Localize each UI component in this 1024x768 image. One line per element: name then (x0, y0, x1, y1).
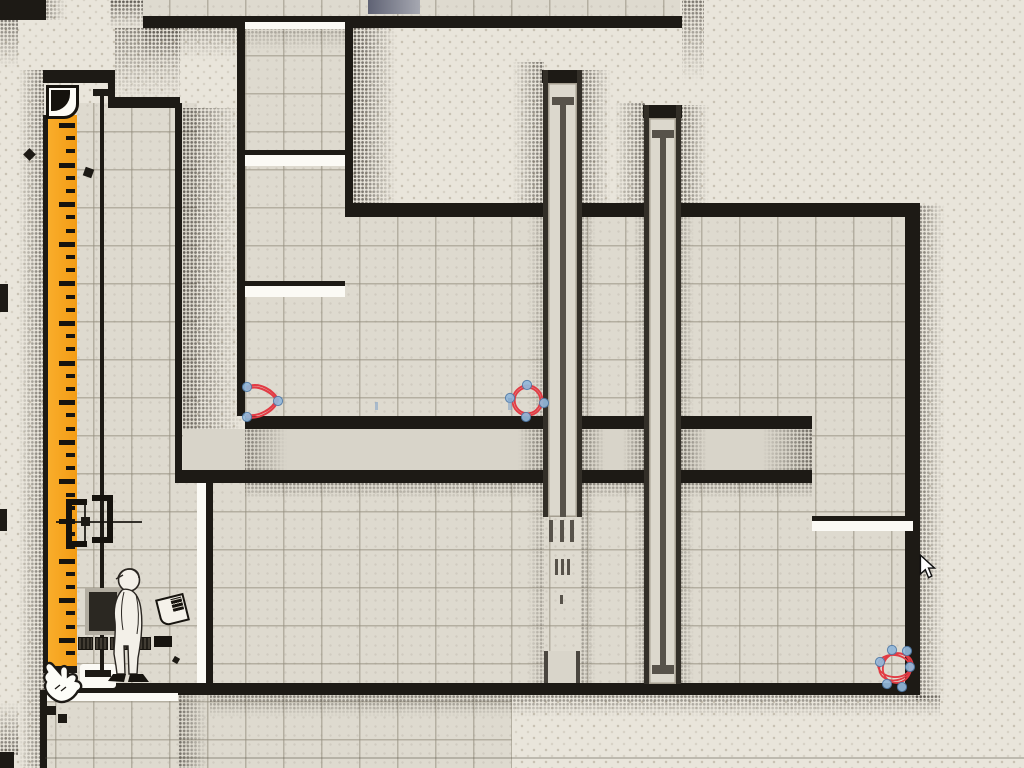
pen-circle-handle[interactable] (522, 380, 531, 389)
pen-circle[interactable] (515, 388, 541, 414)
pen-curve-handle[interactable] (273, 396, 282, 405)
faint-blue-tick (375, 402, 378, 410)
glove-hand-cursor (40, 660, 84, 708)
pen-circle-handle[interactable] (539, 398, 548, 407)
pen-scribble-handle[interactable] (875, 657, 884, 666)
pen-scribble-handle[interactable] (887, 645, 896, 654)
pen-scribble-handle[interactable] (882, 679, 891, 688)
pen-scribble-handle[interactable] (905, 662, 914, 671)
pen-scribble-handle[interactable] (902, 646, 911, 655)
pen-circle-handle[interactable] (521, 412, 530, 421)
pen-curve-handle[interactable] (242, 412, 251, 421)
arrow-cursor (919, 554, 937, 580)
game-canvas (0, 0, 1024, 768)
paper-edge-line (45, 757, 1024, 759)
pen-annotation-layer[interactable] (0, 0, 1024, 768)
faint-blue-tick (508, 398, 512, 410)
pen-scribble-handle[interactable] (897, 682, 906, 691)
pen-curve-handle[interactable] (242, 382, 251, 391)
